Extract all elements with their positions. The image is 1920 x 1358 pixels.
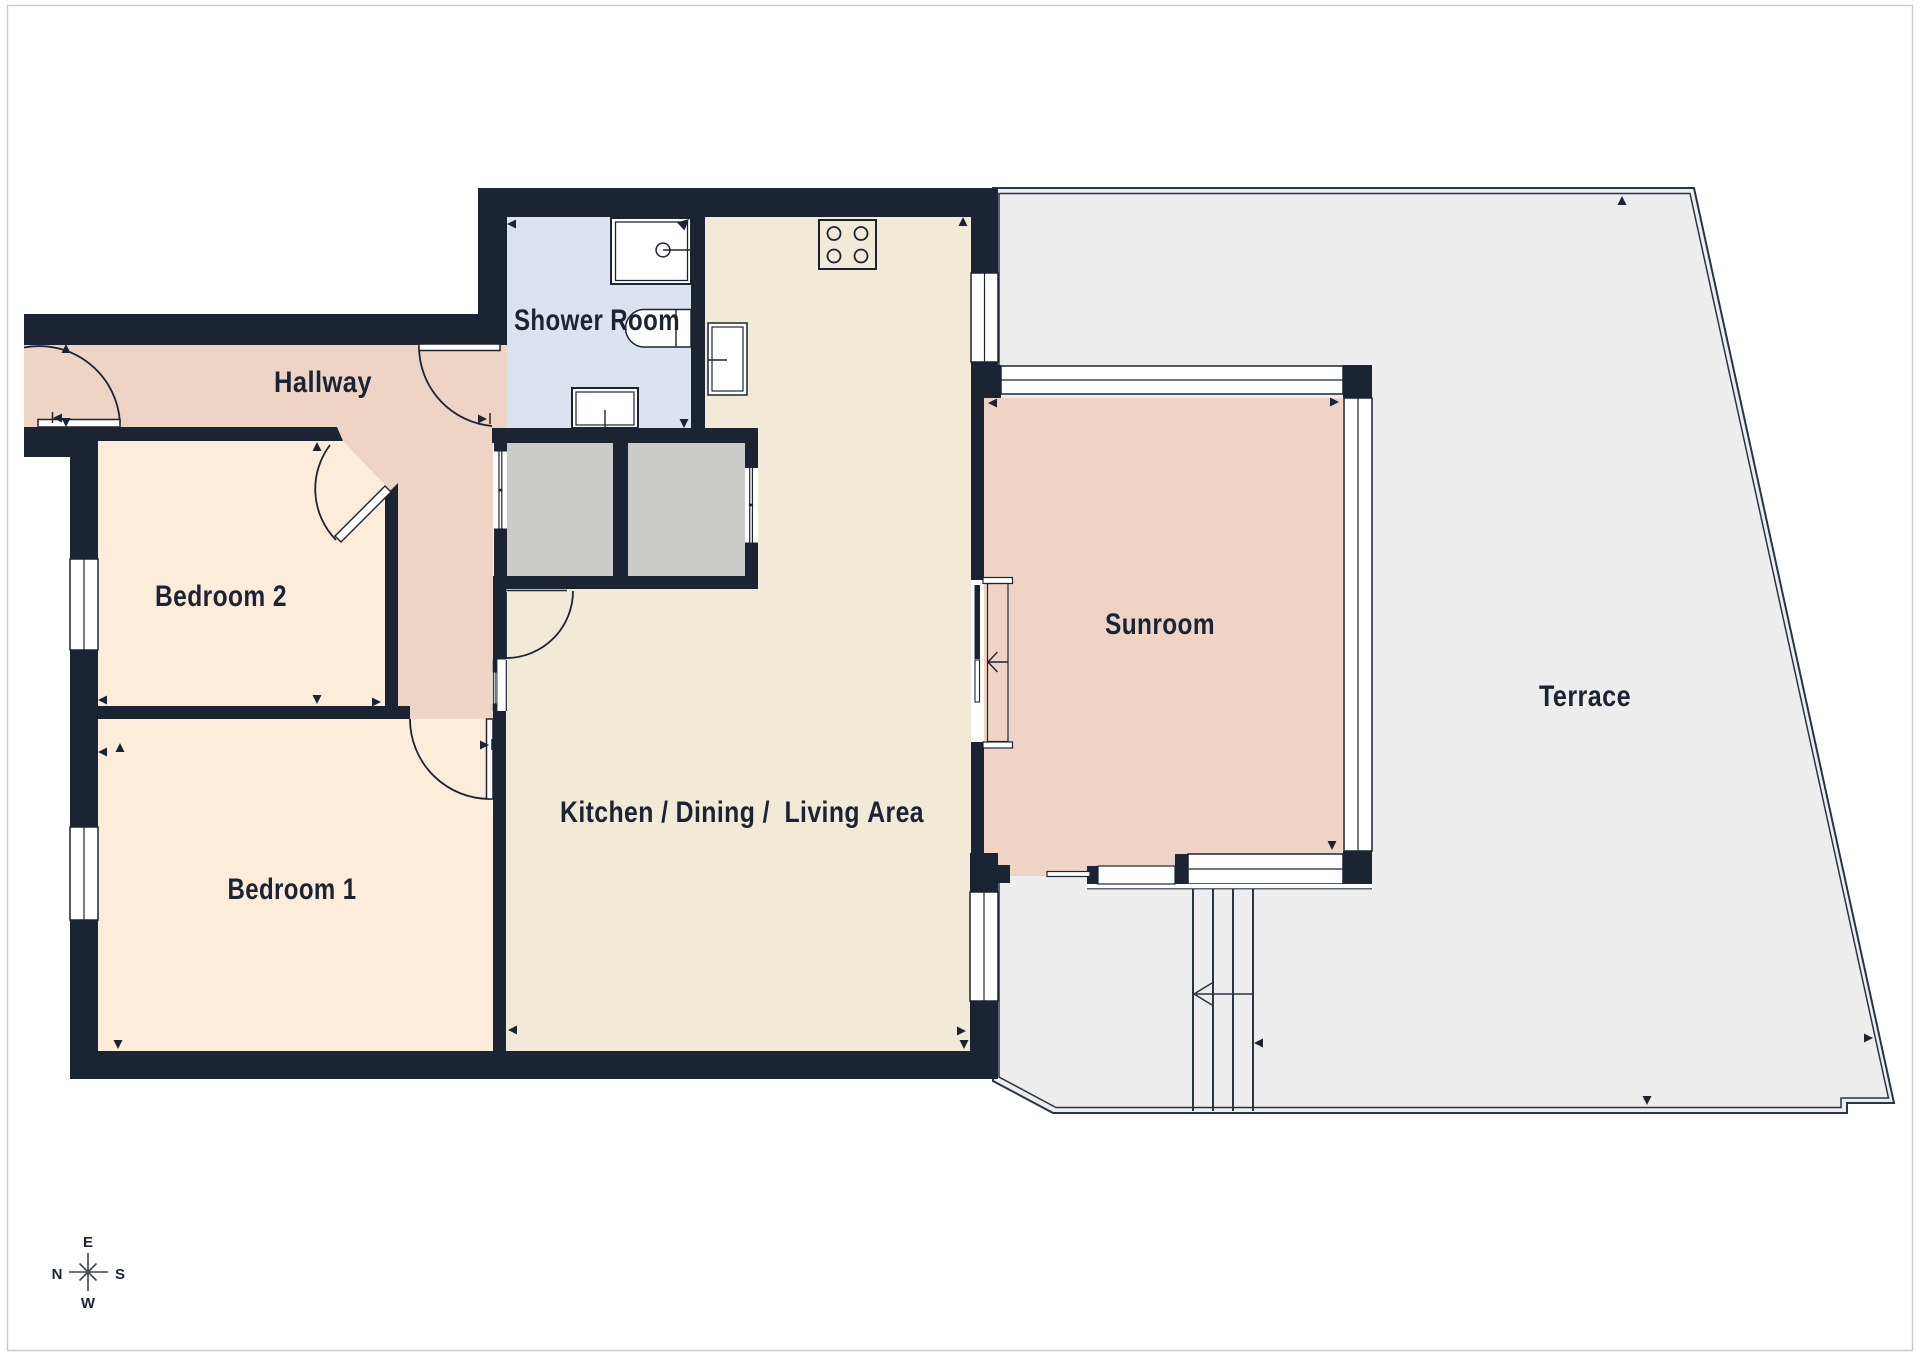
- svg-text:Bedroom 2: Bedroom 2: [155, 580, 287, 613]
- svg-text:Hallway: Hallway: [274, 366, 372, 399]
- svg-text:E: E: [83, 1234, 93, 1251]
- svg-text:Bedroom 1: Bedroom 1: [228, 873, 357, 906]
- svg-text:Kitchen / Dining / Living Are: Kitchen / Dining / Living Area: [560, 796, 924, 829]
- svg-text:W: W: [81, 1295, 96, 1312]
- svg-text:N: N: [52, 1266, 63, 1283]
- svg-text:Shower Room: Shower Room: [514, 304, 680, 337]
- svg-text:S: S: [115, 1266, 125, 1283]
- svg-text:Terrace: Terrace: [1539, 680, 1631, 713]
- svg-text:Sunroom: Sunroom: [1105, 608, 1215, 641]
